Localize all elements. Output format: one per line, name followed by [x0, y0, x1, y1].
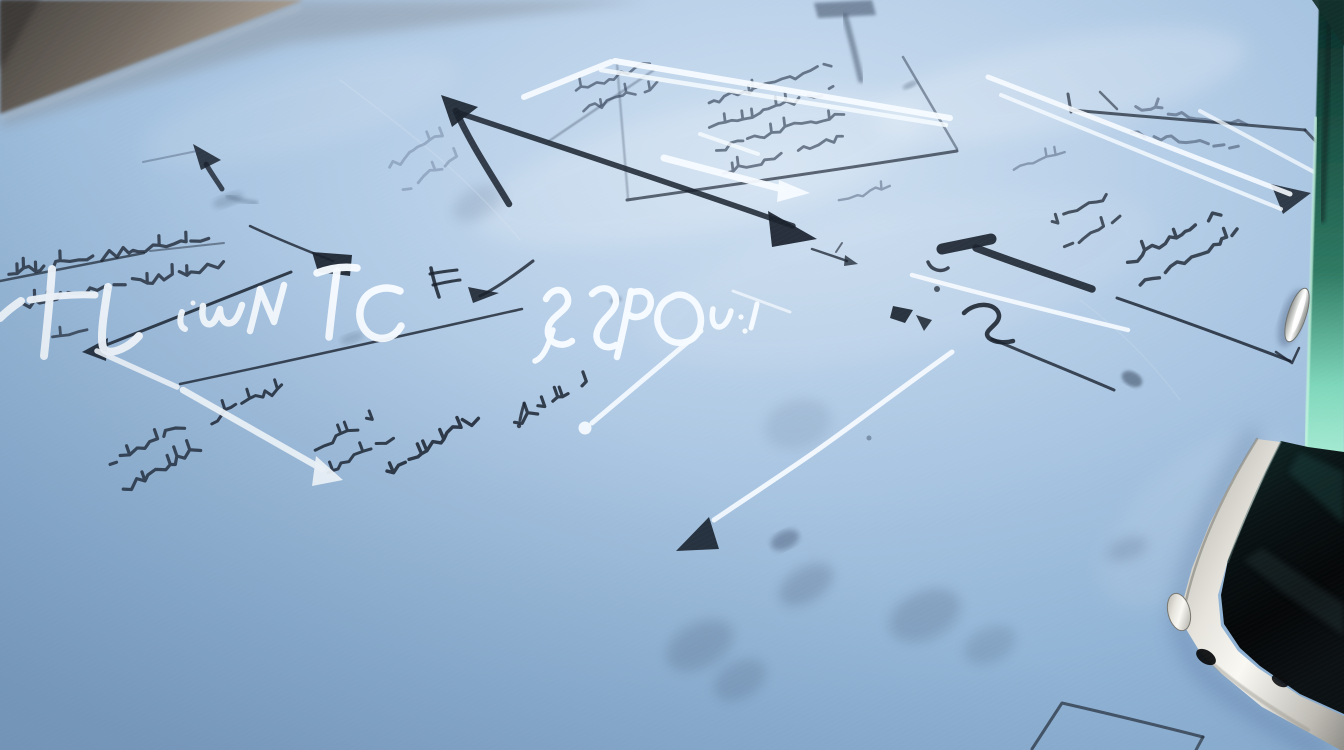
vignette-overlay: [0, 0, 1344, 750]
photo-canvas: [0, 0, 1344, 750]
photo-scene: [0, 0, 1344, 750]
